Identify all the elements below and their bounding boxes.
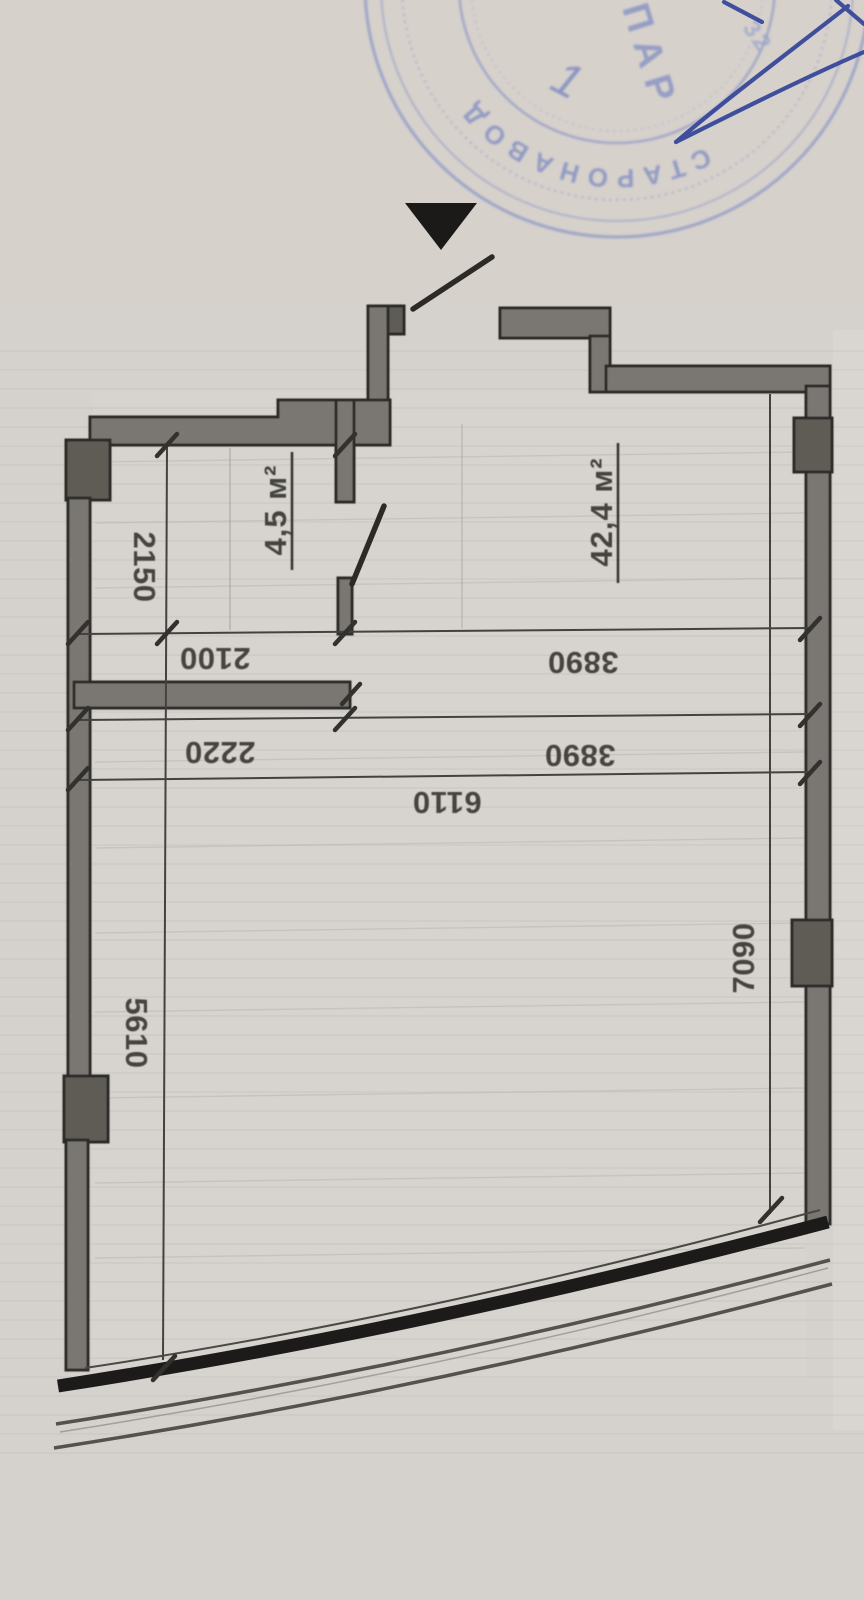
dimension-label-2150: 2150 [127, 532, 162, 603]
wall-right [806, 386, 830, 1224]
dimension-label-7090: 7090 [726, 923, 761, 994]
dimension-label-2220: 2220 [185, 735, 256, 770]
wall-entry-right [500, 308, 610, 338]
wall-left-lower [66, 1140, 88, 1370]
dimension-label-3890-lower: 3890 [545, 738, 616, 773]
pillar-right-upper [794, 418, 832, 472]
dimension-label-2100: 2100 [180, 641, 251, 676]
area-label-small-room: 4,5 м² [258, 465, 293, 556]
floor-plan-scan: СТАРОНАВОД ПАР 1 32 [0, 0, 864, 1600]
dimension-label-5610: 5610 [119, 998, 154, 1069]
pillar-right-lower [792, 920, 832, 986]
pillar-left-lower [64, 1076, 108, 1142]
wall-bottom-small-room [74, 682, 350, 708]
pillar-left-upper [66, 440, 110, 500]
scan-artifact-lines [0, 340, 864, 1470]
wall-top-main-room [606, 366, 830, 392]
area-label-main-room: 42,4 м² [584, 457, 619, 566]
dimension-label-6110: 6110 [412, 785, 481, 820]
dimension-label-3890-upper: 3890 [548, 645, 619, 680]
